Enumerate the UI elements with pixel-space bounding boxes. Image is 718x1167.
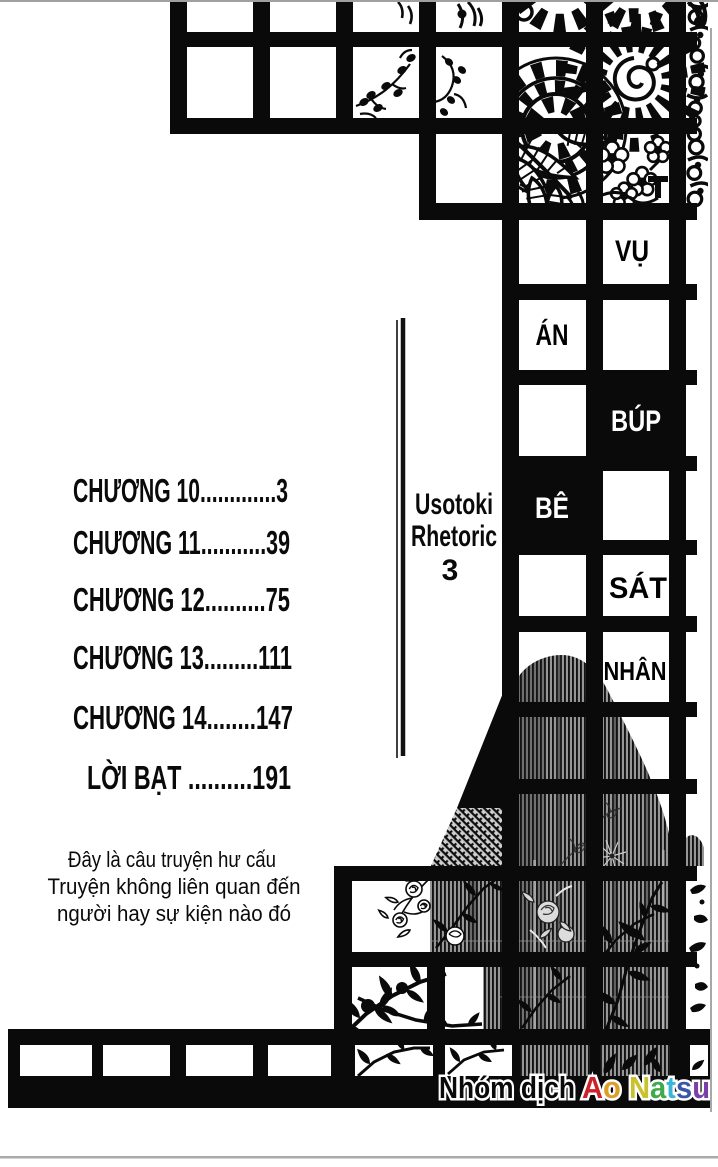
svg-text:BÚP: BÚP	[611, 404, 661, 438]
svg-text:NHÂN: NHÂN	[604, 656, 667, 686]
svg-text:CHƯƠNG 12..........75: CHƯƠNG 12..........75	[73, 581, 290, 618]
svg-text:LỜI BẠT ..........191: LỜI BẠT ..........191	[87, 759, 291, 796]
svg-text:ÁN: ÁN	[536, 318, 569, 352]
svg-text:3: 3	[442, 554, 459, 587]
svg-text:người hay sự kiện nào đó: người hay sự kiện nào đó	[57, 901, 291, 926]
svg-text:Rhetoric: Rhetoric	[411, 520, 497, 553]
svg-text:Truyện không liên quan đến: Truyện không liên quan đến	[48, 874, 301, 899]
svg-text:SÁT: SÁT	[609, 571, 667, 605]
svg-text:CHƯƠNG 10.............3: CHƯƠNG 10.............3	[73, 472, 288, 509]
svg-text:Nhóm dịch: Nhóm dịch	[439, 1070, 575, 1105]
svg-text:Usotoki: Usotoki	[415, 488, 493, 521]
svg-text:Ao Natsu: Ao Natsu	[582, 1070, 710, 1105]
svg-text:VỤ: VỤ	[615, 235, 649, 268]
svg-text:CHƯƠNG 13.........111: CHƯƠNG 13.........111	[73, 639, 292, 676]
svg-text:CHƯƠNG 11...........39: CHƯƠNG 11...........39	[73, 524, 290, 561]
svg-text:Đây là câu truyện hư cấu: Đây là câu truyện hư cấu	[68, 847, 276, 872]
svg-text:CHƯƠNG 14........147: CHƯƠNG 14........147	[73, 699, 293, 736]
svg-text:BÊ: BÊ	[535, 491, 569, 525]
